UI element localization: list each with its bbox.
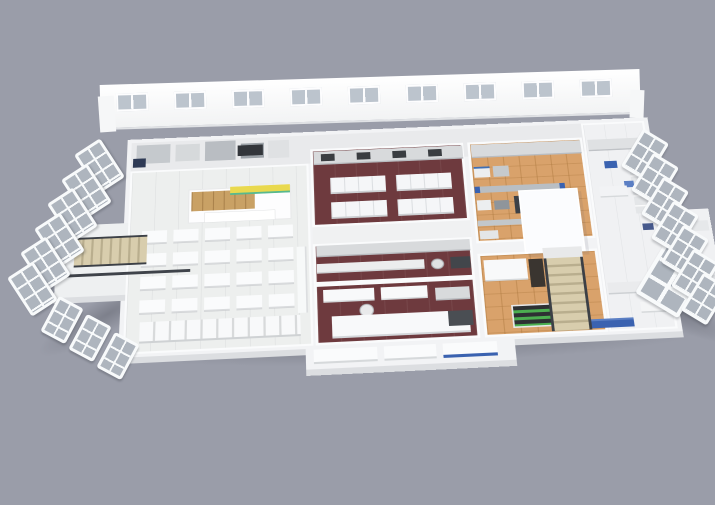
- island-bench: [396, 173, 452, 192]
- back-window: [464, 82, 497, 101]
- island-bench: [331, 200, 388, 219]
- building-floorplan: [118, 117, 683, 358]
- machine-unit: [494, 200, 510, 210]
- corner-post-right: [630, 90, 645, 118]
- dining-table: [139, 299, 165, 314]
- cooktop: [392, 150, 406, 158]
- lab-instrument-blue: [604, 161, 618, 169]
- dining-table: [205, 250, 230, 265]
- range-block: [435, 286, 470, 300]
- dining-table: [268, 270, 294, 285]
- machine-unit: [493, 165, 510, 176]
- work-bench: [323, 288, 375, 303]
- dining-table: [268, 224, 293, 238]
- island-bench: [397, 197, 454, 216]
- servery-counter-blue: [443, 341, 498, 358]
- lab-table: [599, 185, 628, 197]
- dining-table: [173, 251, 199, 266]
- dining-table: [140, 276, 166, 291]
- servery-counter: [384, 344, 437, 361]
- machine-unit: [474, 166, 491, 177]
- back-window: [174, 91, 207, 110]
- dining-table: [269, 293, 295, 308]
- dining-table: [237, 226, 262, 240]
- left-staircase: [74, 235, 148, 268]
- dining-table: [173, 229, 198, 243]
- dining-table: [268, 247, 293, 262]
- machine-unit: [477, 200, 492, 211]
- clean-room-block: [518, 188, 586, 254]
- dining-table: [236, 271, 261, 286]
- grow-cabinet: [511, 303, 554, 328]
- dining-table: [236, 248, 261, 263]
- dining-table: [204, 296, 230, 311]
- back-window: [580, 79, 613, 98]
- cooktop: [357, 152, 371, 160]
- dark-equipment: [448, 310, 474, 326]
- work-bench: [381, 285, 428, 300]
- fryer-unit: [450, 256, 471, 268]
- render-stage: [0, 0, 715, 505]
- back-window: [522, 81, 555, 100]
- dining-table: [172, 298, 198, 313]
- dining-table: [205, 227, 230, 241]
- packing-table: [483, 258, 528, 281]
- dining-table: [204, 273, 230, 288]
- back-window: [406, 84, 439, 103]
- island-bench: [330, 175, 386, 194]
- dining-table: [236, 295, 262, 310]
- cooktop: [428, 149, 442, 157]
- corner-post-left: [98, 95, 116, 132]
- back-window: [232, 89, 265, 108]
- machine-unit: [480, 230, 499, 239]
- dining-table: [172, 274, 198, 289]
- back-window: [348, 86, 381, 105]
- cooktop: [321, 154, 335, 162]
- lab-instrument-blue: [642, 223, 654, 230]
- servery-counter: [314, 347, 378, 364]
- back-window: [116, 93, 149, 112]
- back-window: [290, 87, 323, 106]
